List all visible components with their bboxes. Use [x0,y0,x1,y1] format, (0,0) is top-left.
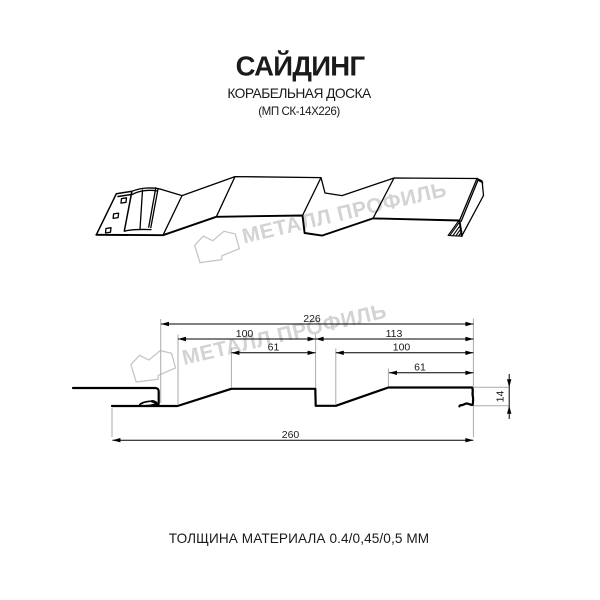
svg-text:100: 100 [393,342,411,354]
svg-text:226: 226 [303,313,321,325]
svg-text:КОРАБЕЛЬНАЯ ДОСКА: КОРАБЕЛЬНАЯ ДОСКА [227,86,372,101]
svg-text:САЙДИНГ: САЙДИНГ [236,51,366,82]
svg-text:113: 113 [386,328,403,340]
svg-text:(МП СК-14Х226): (МП СК-14Х226) [258,105,340,118]
svg-text:14: 14 [495,391,507,403]
svg-text:61: 61 [268,342,280,354]
svg-text:260: 260 [282,429,300,441]
svg-text:МЕТАЛЛ ПРОФИЛЬ: МЕТАЛЛ ПРОФИЛЬ [240,178,449,248]
svg-text:ТОЛЩИНА МАТЕРИАЛА 0.4/0,45/0,5: ТОЛЩИНА МАТЕРИАЛА 0.4/0,45/0,5 ММ [169,531,429,546]
svg-text:МЕТАЛЛ ПРОФИЛЬ: МЕТАЛЛ ПРОФИЛЬ [180,300,389,370]
svg-text:61: 61 [414,361,426,373]
svg-text:100: 100 [236,328,254,340]
